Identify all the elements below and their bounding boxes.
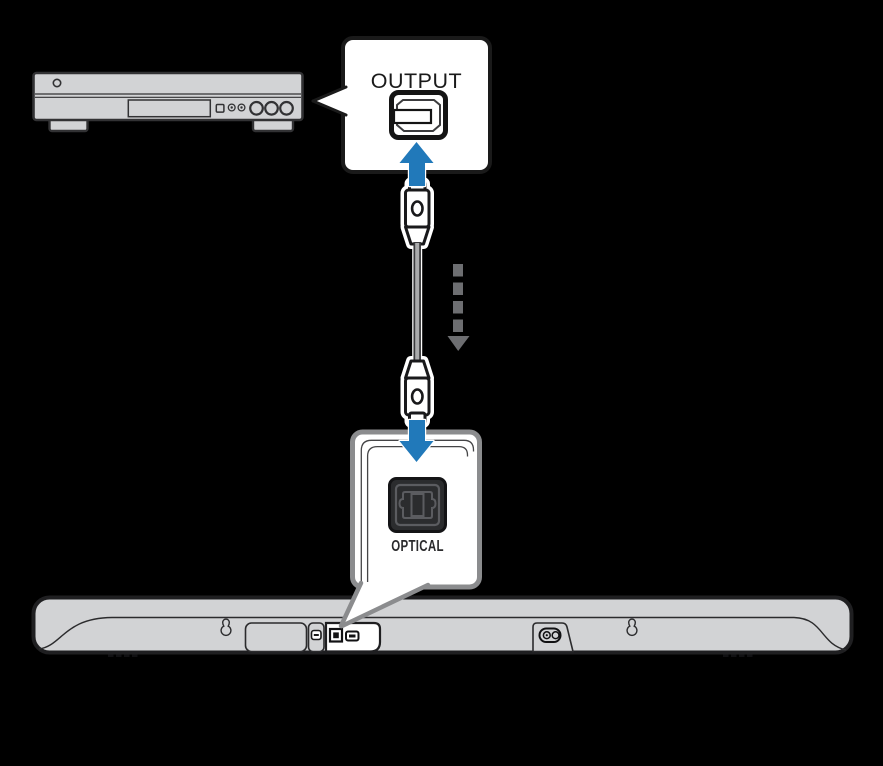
output-port-label: OUTPUT (371, 69, 462, 93)
soundbar-recessed-panel (246, 623, 307, 652)
device-knob (250, 102, 263, 115)
output-callout-pointer (313, 87, 346, 115)
diagram-svg: OPTICAL OUTPUT (0, 0, 883, 766)
cable-connector-bottom (406, 361, 430, 423)
media-player-device (34, 73, 303, 131)
soundbar-body (34, 598, 852, 653)
diagram-canvas: OPTICAL OUTPUT (0, 0, 883, 766)
dashed-direction-arrow-icon (448, 264, 470, 351)
optical-output-port-icon (392, 93, 446, 138)
cable-connector-top (406, 182, 430, 244)
output-callout: OUTPUT (313, 38, 490, 172)
optical-cable (406, 182, 430, 423)
device-jack-dot (240, 106, 242, 108)
optical-input-port-icon (390, 479, 446, 532)
usb-port-slot (314, 634, 319, 636)
device-knob (280, 102, 293, 115)
aux-port-inner (349, 635, 356, 638)
device-jack-dot (231, 106, 233, 108)
soundbar-device (34, 598, 852, 658)
optical-port-label: OPTICAL (391, 536, 444, 554)
device-knob (265, 102, 278, 115)
optical-port-inner (333, 632, 339, 638)
device-display (128, 100, 210, 117)
power-inlet-pin-dot (546, 634, 548, 636)
